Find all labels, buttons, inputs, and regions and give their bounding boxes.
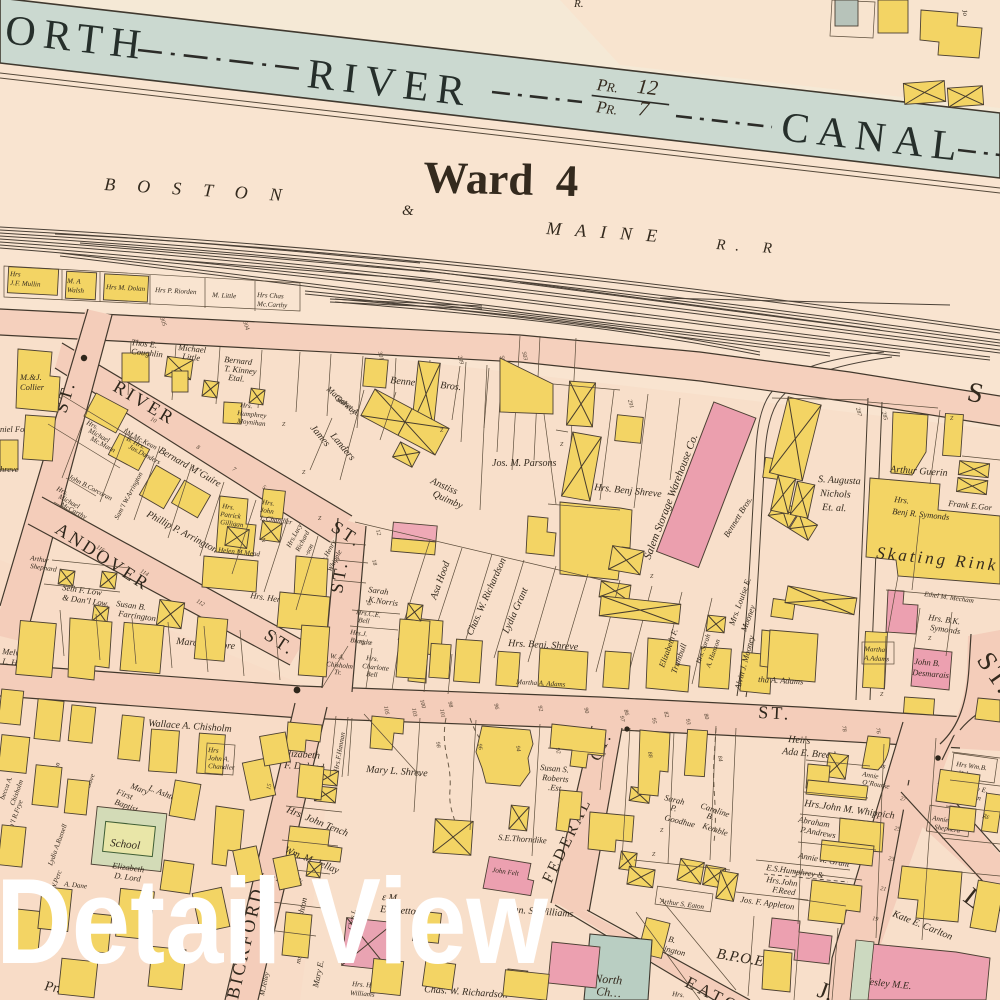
svg-text:S. Augusta: S. Augusta	[818, 474, 861, 487]
svg-text:94: 94	[514, 745, 522, 752]
svg-text:76: 76	[874, 727, 881, 734]
svg-text:M.&J.: M.&J.	[19, 372, 42, 382]
svg-text:J.F. Mullin: J.F. Mullin	[10, 279, 41, 289]
svg-text:Nichols: Nichols	[819, 488, 851, 501]
svg-text:21: 21	[880, 886, 887, 893]
svg-text:Bros.: Bros.	[440, 380, 462, 393]
svg-text:Bell: Bell	[358, 616, 370, 625]
svg-text:Rɛ: Rɛ	[981, 812, 990, 821]
svg-text:84: 84	[716, 755, 724, 762]
svg-text:88: 88	[646, 751, 653, 758]
svg-text:Martha: Martha	[863, 645, 886, 654]
svg-text:Hrs.: Hrs.	[893, 494, 910, 506]
svg-text:Et. al.: Et. al.	[821, 502, 847, 514]
svg-text:Collier: Collier	[20, 382, 45, 392]
svg-text:Hrs: Hrs	[9, 270, 21, 279]
svg-text:23: 23	[888, 856, 895, 863]
svg-text:Hrs Chas: Hrs Chas	[256, 291, 284, 300]
svg-text:Etal.: Etal.	[227, 372, 245, 384]
svg-text:&: &	[402, 203, 414, 219]
svg-text:Ward 4: Ward 4	[423, 152, 579, 206]
svg-text:Heirs: Heirs	[787, 734, 811, 747]
svg-text:93: 93	[684, 718, 691, 725]
svg-text:Ch…: Ch…	[596, 984, 622, 1000]
svg-text:92: 92	[554, 747, 561, 754]
svg-text:95: 95	[650, 717, 657, 724]
svg-text:98: 98	[434, 741, 441, 748]
svg-text:96: 96	[476, 743, 483, 750]
svg-text:Jos. M. Parsons: Jos. M. Parsons	[492, 458, 557, 469]
svg-text:Little: Little	[181, 351, 201, 363]
svg-text:Hrs.: Hrs.	[671, 990, 685, 999]
svg-text:ST.: ST.	[758, 702, 792, 724]
svg-text:Tr.: Tr.	[334, 668, 342, 677]
svg-text:M. A: M. A	[66, 277, 82, 286]
svg-text:R.: R.	[604, 101, 618, 117]
svg-text:R.: R.	[573, 0, 583, 10]
svg-text:19: 19	[872, 916, 879, 923]
svg-text:hreve: hreve	[0, 464, 19, 474]
svg-text:M. Little: M. Little	[211, 291, 237, 300]
svg-text:R.: R.	[605, 79, 619, 95]
svg-text:Walsh: Walsh	[67, 286, 85, 295]
svg-text:25: 25	[894, 826, 901, 833]
svg-text:78: 78	[840, 725, 847, 732]
svg-text:Mc.Carthy: Mc.Carthy	[256, 300, 288, 310]
svg-text:Detail View: Detail View	[0, 853, 549, 989]
